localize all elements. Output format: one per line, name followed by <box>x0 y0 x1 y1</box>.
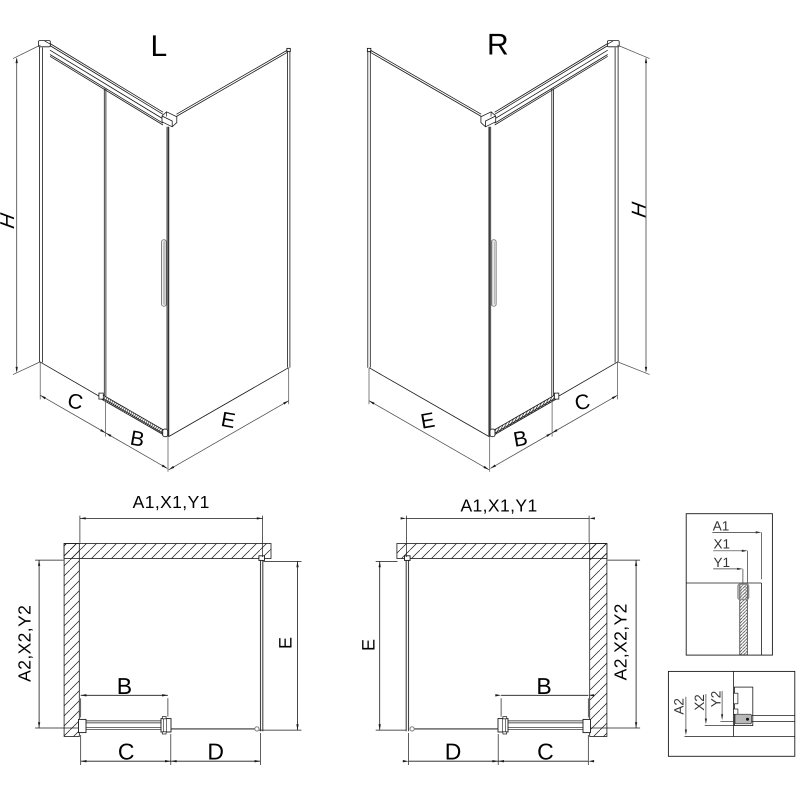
svg-text:B: B <box>536 673 551 699</box>
svg-text:A1,X1,Y1: A1,X1,Y1 <box>133 492 210 512</box>
svg-text:A1,X1,Y1: A1,X1,Y1 <box>460 496 537 516</box>
svg-text:Y1: Y1 <box>714 555 731 570</box>
svg-text:C: C <box>537 738 554 764</box>
svg-text:D: D <box>207 738 224 764</box>
svg-text:A2: A2 <box>672 698 687 715</box>
svg-text:X2: X2 <box>692 694 707 711</box>
svg-text:A1: A1 <box>713 518 730 533</box>
svg-text:L: L <box>150 30 167 63</box>
svg-text:R: R <box>487 29 509 62</box>
svg-text:D: D <box>445 738 462 764</box>
svg-text:Y2: Y2 <box>708 691 723 708</box>
svg-text:A2,X2,Y2: A2,X2,Y2 <box>15 605 35 682</box>
svg-text:E: E <box>275 637 295 649</box>
svg-text:X1: X1 <box>714 537 731 552</box>
svg-text:B: B <box>117 673 132 699</box>
svg-text:C: C <box>118 738 135 764</box>
svg-text:E: E <box>359 639 379 651</box>
svg-text:A2,X2,Y2: A2,X2,Y2 <box>611 603 631 680</box>
